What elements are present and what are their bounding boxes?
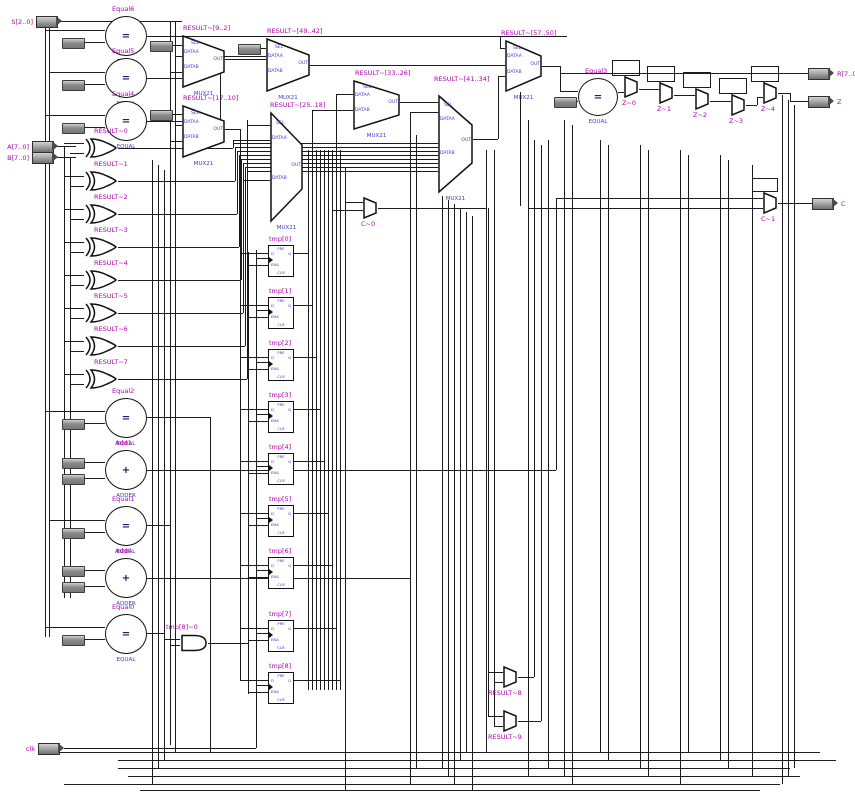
mux-icon <box>695 88 710 110</box>
dff-tmp-8[interactable]: tmp[8] PRE D Q ENA CLR <box>268 672 294 704</box>
port-sel: SEL <box>191 42 199 47</box>
wire <box>240 680 268 681</box>
comparator-equal1[interactable]: Equal1 = EQUAL <box>105 506 147 546</box>
wire <box>788 100 789 776</box>
small-mux-c1[interactable]: C~1 <box>763 192 778 214</box>
output-pin-z[interactable]: Z <box>808 96 830 108</box>
wire <box>494 150 495 726</box>
port-out: OUT <box>461 139 471 144</box>
wire <box>560 91 578 92</box>
instance-name: Add0 <box>115 548 132 555</box>
port-dataa: DATAA <box>184 121 199 126</box>
xor-gate-result-2[interactable]: RESULT~2 <box>84 203 118 225</box>
wire <box>256 570 268 571</box>
comparator-equal4[interactable]: Equal4 = EQUAL <box>105 101 147 141</box>
port-sel: SEL <box>276 122 284 127</box>
small-mux-z4[interactable]: Z~4 <box>763 82 778 104</box>
wire <box>45 21 46 637</box>
wire <box>248 473 268 474</box>
wire <box>83 423 105 424</box>
mux-result-17-10[interactable]: RESULT~[17..10] SEL DATAA DATAB OUT MUX2… <box>182 105 225 158</box>
instance-name: Z~0 <box>622 100 636 107</box>
wire <box>560 66 561 91</box>
xor-icon <box>84 170 118 192</box>
wire <box>534 140 535 677</box>
constant-box <box>62 123 85 134</box>
xor-gate-result-3[interactable]: RESULT~3 <box>84 236 118 258</box>
wire <box>45 627 105 628</box>
wire <box>248 692 268 693</box>
port-dataa: DATAA <box>268 55 283 60</box>
output-pin-c[interactable]: C <box>812 198 834 210</box>
wire <box>175 21 176 752</box>
small-mux-c0[interactable]: C~0 <box>363 197 378 219</box>
wire <box>488 716 503 717</box>
small-mux-z2[interactable]: Z~2 <box>695 88 710 110</box>
wire <box>70 318 84 319</box>
dff-tmp-3[interactable]: tmp[3] PRE D Q ENA CLR <box>268 401 294 433</box>
pin-label: R[7..0] <box>837 70 855 78</box>
wire <box>608 145 609 760</box>
wire <box>790 101 808 102</box>
wire <box>728 160 729 768</box>
wire <box>239 155 438 156</box>
constant-box <box>554 97 577 108</box>
wire <box>336 150 337 690</box>
wire <box>56 146 76 147</box>
wire <box>256 258 268 259</box>
wire <box>639 89 659 90</box>
port-clr: CLR <box>277 323 284 327</box>
small-mux-z0[interactable]: Z~0 <box>624 76 639 98</box>
input-pin-icon <box>38 743 60 755</box>
equal-symbol: = <box>122 521 130 532</box>
mux-icon <box>659 82 674 104</box>
wire <box>147 633 164 634</box>
instance-name: tmp[8] <box>269 663 291 670</box>
wire <box>442 196 443 768</box>
wire <box>345 167 346 202</box>
mux-icon <box>763 82 778 104</box>
port-pre: PRE <box>277 507 284 511</box>
cell-type: MUX21 <box>194 162 214 168</box>
wire <box>256 310 268 311</box>
wire <box>256 414 268 415</box>
instance-name: RESULT~[57..50] <box>501 30 556 37</box>
port-q: Q <box>288 408 291 412</box>
port-pre: PRE <box>277 455 284 459</box>
port-datab: DATAB <box>272 177 287 182</box>
plus-symbol: + <box>122 573 130 584</box>
wire <box>292 513 328 514</box>
instance-name: Z~4 <box>761 106 775 113</box>
mux-result-41-34[interactable]: RESULT~[41..34] SEL DATAA DATAB OUT MUX2… <box>438 95 473 193</box>
wire <box>518 677 534 678</box>
wire <box>648 150 649 776</box>
instance-name: RESULT~2 <box>94 194 128 201</box>
wire <box>64 242 84 243</box>
dff-tmp-7[interactable]: tmp[7] PRE D Q ENA CLR <box>268 620 294 652</box>
wire <box>466 212 467 752</box>
wire <box>147 121 182 122</box>
wire <box>292 461 324 462</box>
instance-name: Add1 <box>115 440 132 447</box>
port-dataa: DATAA <box>440 118 455 123</box>
wire <box>256 362 268 363</box>
xor-gate-result-7[interactable]: RESULT~7 <box>84 368 118 390</box>
port-pre: PRE <box>277 247 284 251</box>
wire <box>55 752 820 753</box>
instance-name: RESULT~6 <box>94 326 128 333</box>
mux-result-49-42[interactable]: RESULT~[49..42] SEL DATAA DATAB OUT MUX2… <box>266 38 310 92</box>
xor-icon <box>84 236 118 258</box>
wire <box>292 628 336 629</box>
xor-gate-result-5[interactable]: RESULT~5 <box>84 302 118 324</box>
wire <box>70 252 84 253</box>
pin-label: clk <box>26 745 35 753</box>
instance-name: RESULT~[49..42] <box>267 28 322 35</box>
equal-icon: = <box>578 78 618 116</box>
wire <box>488 208 489 716</box>
port-q: Q <box>288 512 291 516</box>
wire <box>308 150 309 690</box>
wire <box>118 313 243 314</box>
wire <box>128 776 800 777</box>
mux-result-9-2[interactable]: RESULT~[9..2] SEL DATAA DATAB OUT MUX21 <box>182 35 225 88</box>
instance-name: RESULT~5 <box>94 293 128 300</box>
wire <box>240 461 268 462</box>
wire <box>248 369 268 370</box>
wire <box>292 253 308 254</box>
wire <box>292 305 312 306</box>
input-pin-s[interactable]: S[2..0] <box>36 16 58 28</box>
input-pin-clk[interactable]: clk <box>38 743 60 755</box>
port-q: Q <box>288 564 291 568</box>
port-clr: CLR <box>277 646 284 650</box>
wire <box>64 143 84 144</box>
port-ena: ENA <box>271 690 279 694</box>
instance-name: tmp[7] <box>269 611 291 618</box>
dff-tmp-2[interactable]: tmp[2] PRE D Q ENA CLR <box>268 349 294 381</box>
wire <box>688 155 689 752</box>
output-pin-icon <box>812 198 834 210</box>
wire <box>220 56 266 57</box>
wire <box>340 150 341 690</box>
wire <box>498 76 499 139</box>
port-clr: CLR <box>277 583 284 587</box>
wire <box>757 97 758 105</box>
wire <box>556 198 557 470</box>
wire <box>572 125 573 784</box>
wire <box>400 102 438 103</box>
comparator-equal0[interactable]: Equal0 = EQUAL <box>105 614 147 654</box>
mux-icon <box>763 192 778 214</box>
dff-tmp-1[interactable]: tmp[1] PRE D Q ENA CLR <box>268 297 294 329</box>
port-out: OUT <box>298 62 308 67</box>
xor-gate-result-1[interactable]: RESULT~1 <box>84 170 118 192</box>
wire <box>410 112 438 113</box>
wire <box>147 525 170 526</box>
port-sel: SEL <box>191 112 199 117</box>
wire <box>248 640 268 641</box>
wire <box>118 379 247 380</box>
wire <box>790 93 791 101</box>
port-pre: PRE <box>277 403 284 407</box>
wire <box>64 275 84 276</box>
port-dataa: DATAA <box>272 137 287 142</box>
pin-label: Z <box>837 98 841 106</box>
adder-icon: + <box>105 558 147 598</box>
port-ena: ENA <box>271 575 279 579</box>
input-pin-b[interactable]: B[7..0] <box>32 152 54 164</box>
mux-result-33-26[interactable]: RESULT~[33..26] SEL DATAA DATAB OUT MUX2… <box>353 80 400 130</box>
wire <box>233 140 270 141</box>
wire <box>70 153 84 154</box>
wire <box>345 202 363 203</box>
wire <box>332 150 333 690</box>
and-gate-tmp[interactable]: tmp[8]~0 <box>180 634 208 652</box>
instance-name: tmp[1] <box>269 288 291 295</box>
mux-result-25-18[interactable]: RESULT~[25..18] SEL DATAA DATAB OUT MUX2… <box>270 112 303 222</box>
port-ena: ENA <box>271 367 279 371</box>
wire <box>248 317 268 318</box>
wire <box>140 790 760 791</box>
port-clr: CLR <box>277 271 284 275</box>
instance-name: C~0 <box>361 221 375 228</box>
wire <box>248 421 268 422</box>
wire <box>170 141 182 142</box>
wire <box>208 643 248 644</box>
wire <box>336 94 353 95</box>
wire <box>170 72 182 73</box>
port-d: D <box>271 679 274 683</box>
mux-icon <box>438 95 473 193</box>
wire <box>49 21 50 637</box>
port-d: D <box>271 627 274 631</box>
port-dataa: DATAA <box>184 51 199 56</box>
wire <box>70 384 84 385</box>
wire <box>83 639 105 640</box>
wire <box>235 147 236 181</box>
port-sel: SEL <box>275 46 283 51</box>
wire <box>175 56 182 57</box>
xor-gate-result-4[interactable]: RESULT~4 <box>84 269 118 291</box>
instance-name: RESULT~[25..18] <box>270 102 325 109</box>
port-datab: DATAB <box>184 66 199 71</box>
wire <box>460 208 461 760</box>
dff-tmp-0[interactable]: tmp[0] PRE D Q ENA CLR <box>268 245 294 277</box>
wire <box>782 95 783 784</box>
wire <box>494 726 503 727</box>
adder-add0[interactable]: Add0 + ADDER <box>105 558 147 598</box>
wire <box>164 170 165 760</box>
equal-icon: = <box>105 506 147 546</box>
wire <box>674 95 695 96</box>
dff-tmp-5[interactable]: tmp[5] PRE D Q ENA CLR <box>268 505 294 537</box>
port-d: D <box>271 460 274 464</box>
port-d: D <box>271 408 274 412</box>
wire <box>292 680 340 681</box>
wire <box>118 768 790 769</box>
wire <box>248 577 268 578</box>
mux-icon <box>503 710 518 732</box>
wire <box>454 204 455 784</box>
wire <box>70 351 84 352</box>
constant-box <box>62 474 85 485</box>
cell-type: MUX21 <box>514 96 534 102</box>
xor-gate-result-0[interactable]: RESULT~0 <box>84 137 118 159</box>
instance-name: Equal5 <box>112 48 134 55</box>
wire <box>240 357 268 358</box>
wire <box>324 150 325 690</box>
xor-icon <box>84 335 118 357</box>
wire <box>243 163 244 313</box>
wire <box>83 586 105 587</box>
port-q: Q <box>288 304 291 308</box>
wire <box>752 165 753 776</box>
pin-label: S[2..0] <box>11 18 33 26</box>
instance-name: RESULT~[33..26] <box>355 70 410 77</box>
wire <box>410 112 411 784</box>
equal-icon: = <box>105 614 147 654</box>
port-d: D <box>271 564 274 568</box>
equal-icon: = <box>105 398 147 438</box>
wire <box>640 145 641 768</box>
pin-label: C <box>841 200 846 208</box>
instance-name: RESULT~8 <box>488 690 522 697</box>
wire <box>158 165 159 768</box>
wire <box>292 409 320 410</box>
port-d: D <box>271 356 274 360</box>
dff-tmp-4[interactable]: tmp[4] PRE D Q ENA CLR <box>268 453 294 485</box>
instance-name: RESULT~3 <box>94 227 128 234</box>
instance-name: RESULT~[9..2] <box>183 25 230 32</box>
wire <box>256 633 268 634</box>
instance-name: Equal6 <box>112 6 134 13</box>
wire <box>256 685 268 686</box>
wire <box>256 466 268 467</box>
wire <box>564 120 565 776</box>
small-mux-z1[interactable]: Z~1 <box>659 82 674 104</box>
comparator-equal2[interactable]: Equal2 = EQUAL <box>105 398 147 438</box>
pin-label: B[7..0] <box>7 154 29 162</box>
wire <box>600 140 601 752</box>
mux-icon <box>624 76 639 98</box>
wire <box>328 150 329 690</box>
wire <box>320 150 321 690</box>
wire <box>118 280 241 281</box>
mux-icon <box>363 197 378 219</box>
small-mux-result-9[interactable]: RESULT~9 <box>503 710 518 732</box>
small-mux-z3[interactable]: Z~3 <box>731 94 746 116</box>
constant-box <box>62 38 85 49</box>
wire <box>64 209 84 210</box>
port-dataa: DATAA <box>355 94 370 99</box>
wire <box>64 308 84 309</box>
schematic-canvas: S[2..0] A[7..0] B[7..0] clk R[7..0] Z C … <box>0 0 855 798</box>
wire <box>488 672 503 673</box>
equal-symbol: = <box>594 92 602 103</box>
port-pre: PRE <box>277 559 284 563</box>
xor-gate-result-6[interactable]: RESULT~6 <box>84 335 118 357</box>
wire <box>316 150 317 690</box>
input-pin-icon <box>32 152 54 164</box>
comparator-equal3[interactable]: Equal3 = EQUAL <box>578 78 618 116</box>
dff-tmp-6[interactable]: tmp[6] PRE D Q ENA CLR <box>268 557 294 589</box>
port-q: Q <box>288 356 291 360</box>
wire <box>83 570 105 571</box>
instance-name: tmp[0] <box>269 236 291 243</box>
wire <box>49 72 105 73</box>
constant-box <box>62 566 85 577</box>
port-q: Q <box>288 679 291 683</box>
output-pin-r[interactable]: R[7..0] <box>808 68 830 80</box>
xor-icon <box>84 368 118 390</box>
port-pre: PRE <box>277 622 284 626</box>
wire <box>175 125 182 126</box>
port-dataa: DATAA <box>507 55 522 60</box>
equal-symbol: = <box>122 413 130 424</box>
wire <box>416 135 417 768</box>
port-pre: PRE <box>277 351 284 355</box>
wire <box>472 216 473 790</box>
wire <box>147 78 182 79</box>
port-out: OUT <box>388 101 398 106</box>
wire <box>680 150 681 784</box>
instance-name: Equal3 <box>585 68 607 75</box>
port-out: OUT <box>291 164 301 169</box>
cell-type: EQUAL <box>589 120 608 126</box>
wire <box>240 565 268 566</box>
plus-symbol: + <box>122 465 130 476</box>
wire <box>336 94 337 150</box>
xor-icon <box>84 137 118 159</box>
wire <box>240 305 268 306</box>
instance-name: C~1 <box>761 216 775 223</box>
port-d: D <box>271 304 274 308</box>
instance-name: Equal1 <box>112 496 134 503</box>
wire <box>240 628 268 629</box>
wire-loop <box>647 66 675 82</box>
port-out: OUT <box>213 128 223 133</box>
port-ena: ENA <box>271 263 279 267</box>
adder-add1[interactable]: Add1 + ADDER <box>105 450 147 490</box>
wire <box>720 155 721 760</box>
port-datab: DATAB <box>184 136 199 141</box>
wire <box>746 105 757 106</box>
equal-symbol: = <box>122 629 130 640</box>
wire <box>486 150 487 752</box>
input-pin-icon <box>36 16 58 28</box>
wire <box>548 140 549 768</box>
wire <box>292 357 316 358</box>
port-sel: SEL <box>444 104 452 109</box>
small-mux-result-8[interactable]: RESULT~8 <box>503 666 518 688</box>
wire-loop <box>751 66 779 82</box>
instance-name: Z~1 <box>657 106 671 113</box>
and-icon <box>180 634 208 652</box>
wire <box>556 198 763 199</box>
wire <box>56 157 76 158</box>
mux-result-57-50[interactable]: RESULT~[57..50] SEL DATAA DATAB OUT MUX2… <box>505 40 542 92</box>
instance-name: Z~2 <box>693 112 707 119</box>
wire <box>528 208 763 209</box>
wire <box>164 639 180 640</box>
port-q: Q <box>288 460 291 464</box>
wire <box>378 208 486 209</box>
wire <box>147 417 210 418</box>
port-ena: ENA <box>271 315 279 319</box>
